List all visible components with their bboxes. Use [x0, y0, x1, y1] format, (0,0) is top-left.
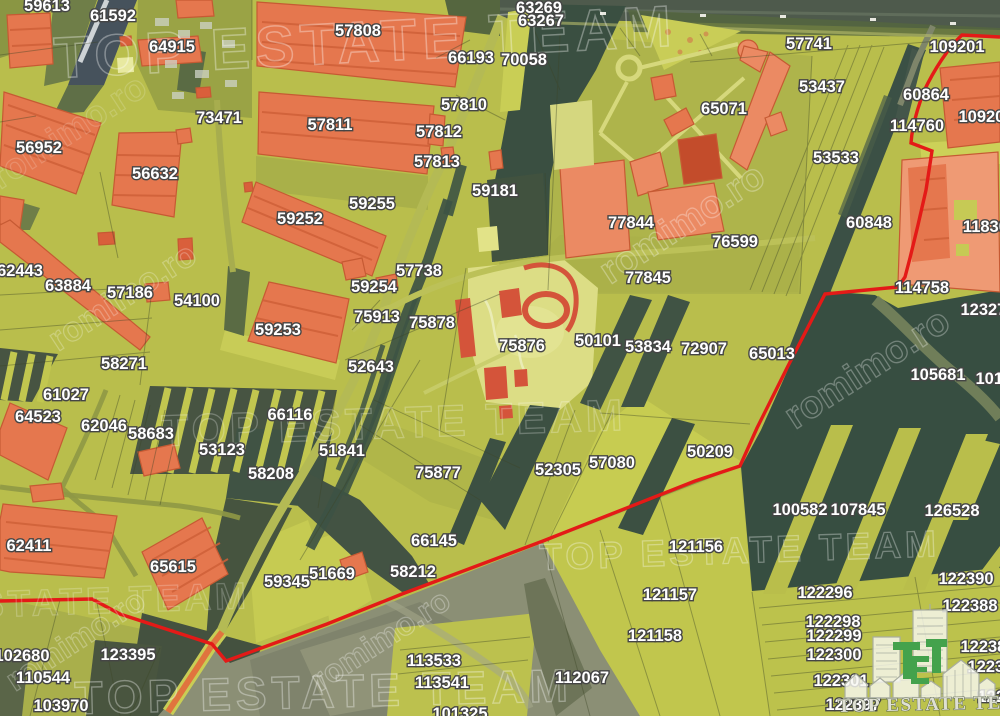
svg-text:121156: 121156 — [669, 538, 723, 556]
svg-text:109201: 109201 — [929, 38, 984, 56]
svg-text:59255: 59255 — [349, 195, 395, 213]
svg-text:121157: 121157 — [643, 586, 697, 604]
svg-text:101325: 101325 — [432, 705, 487, 716]
svg-text:56632: 56632 — [132, 165, 178, 183]
svg-text:62443: 62443 — [0, 262, 43, 280]
svg-text:57810: 57810 — [441, 96, 487, 114]
svg-text:113541: 113541 — [415, 674, 469, 692]
svg-text:122386: 122386 — [960, 638, 1000, 656]
svg-text:64915: 64915 — [149, 38, 195, 56]
svg-text:112067: 112067 — [555, 669, 609, 687]
svg-text:77845: 77845 — [625, 269, 671, 287]
svg-text:75913: 75913 — [354, 308, 400, 326]
svg-text:72907: 72907 — [681, 340, 727, 358]
svg-text:66116: 66116 — [268, 406, 313, 424]
svg-text:53533: 53533 — [813, 149, 859, 167]
svg-text:52305: 52305 — [535, 461, 581, 479]
svg-text:122296: 122296 — [797, 584, 852, 602]
svg-text:57080: 57080 — [589, 454, 635, 472]
svg-text:105681: 105681 — [910, 366, 965, 384]
svg-text:63267: 63267 — [518, 12, 564, 30]
svg-text:109208: 109208 — [958, 108, 1000, 126]
svg-text:58212: 58212 — [390, 563, 436, 581]
svg-text:113533: 113533 — [407, 652, 461, 670]
svg-text:58271: 58271 — [101, 355, 147, 373]
svg-text:52643: 52643 — [348, 358, 394, 376]
svg-text:65615: 65615 — [150, 558, 196, 576]
svg-text:57738: 57738 — [396, 262, 442, 280]
svg-text:103970: 103970 — [33, 697, 88, 715]
svg-text:TOP ESTATE TEAM: TOP ESTATE TEAM — [838, 692, 1000, 716]
svg-text:50101: 50101 — [575, 332, 621, 350]
svg-text:57812: 57812 — [416, 123, 462, 141]
svg-text:53834: 53834 — [625, 338, 672, 356]
svg-text:65013: 65013 — [749, 345, 795, 363]
svg-text:123275: 123275 — [960, 301, 1000, 319]
svg-text:59613: 59613 — [24, 0, 70, 15]
svg-text:107845: 107845 — [830, 501, 885, 519]
svg-text:62411: 62411 — [7, 537, 52, 555]
svg-text:59254: 59254 — [351, 278, 398, 296]
svg-text:62046: 62046 — [81, 417, 127, 435]
svg-text:114758: 114758 — [895, 279, 949, 297]
svg-text:75878: 75878 — [409, 314, 455, 332]
svg-text:54100: 54100 — [174, 292, 220, 310]
svg-text:61027: 61027 — [43, 386, 89, 404]
svg-text:53437: 53437 — [799, 78, 845, 96]
svg-text:66193: 66193 — [448, 49, 494, 67]
svg-text:122388: 122388 — [942, 597, 997, 615]
svg-text:77844: 77844 — [608, 214, 655, 232]
svg-text:50209: 50209 — [687, 443, 733, 461]
svg-text:58683: 58683 — [128, 425, 174, 443]
svg-text:123395: 123395 — [100, 646, 155, 664]
svg-text:65071: 65071 — [701, 100, 747, 118]
svg-text:122299: 122299 — [806, 627, 861, 645]
svg-text:59253: 59253 — [255, 321, 301, 339]
svg-text:70058: 70058 — [501, 51, 547, 69]
svg-text:57808: 57808 — [335, 22, 381, 40]
svg-text:126528: 126528 — [924, 502, 979, 520]
svg-text:61592: 61592 — [90, 7, 136, 25]
svg-text:53123: 53123 — [199, 441, 245, 459]
svg-text:57186: 57186 — [107, 284, 153, 302]
svg-text:58208: 58208 — [248, 465, 294, 483]
svg-text:64523: 64523 — [15, 408, 61, 426]
svg-text:110544: 110544 — [16, 669, 71, 687]
svg-text:59345: 59345 — [264, 573, 310, 591]
svg-text:122300: 122300 — [806, 646, 861, 664]
svg-text:51841: 51841 — [319, 442, 365, 460]
svg-text:73471: 73471 — [196, 109, 242, 127]
svg-text:59252: 59252 — [277, 210, 323, 228]
svg-text:60848: 60848 — [846, 214, 892, 232]
svg-text:118306: 118306 — [963, 218, 1000, 236]
svg-text:57741: 57741 — [786, 35, 832, 53]
svg-text:75877: 75877 — [415, 464, 461, 482]
svg-text:57813: 57813 — [414, 153, 460, 171]
svg-text:60864: 60864 — [903, 86, 950, 104]
svg-text:75876: 75876 — [499, 337, 545, 355]
svg-text:57811: 57811 — [308, 116, 353, 134]
svg-text:76599: 76599 — [712, 233, 758, 251]
svg-text:102680: 102680 — [0, 647, 50, 665]
svg-text:66145: 66145 — [411, 532, 457, 550]
svg-text:63884: 63884 — [45, 277, 92, 295]
svg-text:51669: 51669 — [309, 565, 355, 583]
svg-text:121158: 121158 — [628, 627, 682, 645]
svg-text:122390: 122390 — [938, 570, 993, 588]
svg-text:59181: 59181 — [472, 182, 518, 200]
svg-text:101688: 101688 — [975, 370, 1000, 388]
svg-text:100582: 100582 — [772, 501, 827, 519]
svg-text:114760: 114760 — [890, 117, 944, 135]
svg-text:56952: 56952 — [16, 139, 62, 157]
